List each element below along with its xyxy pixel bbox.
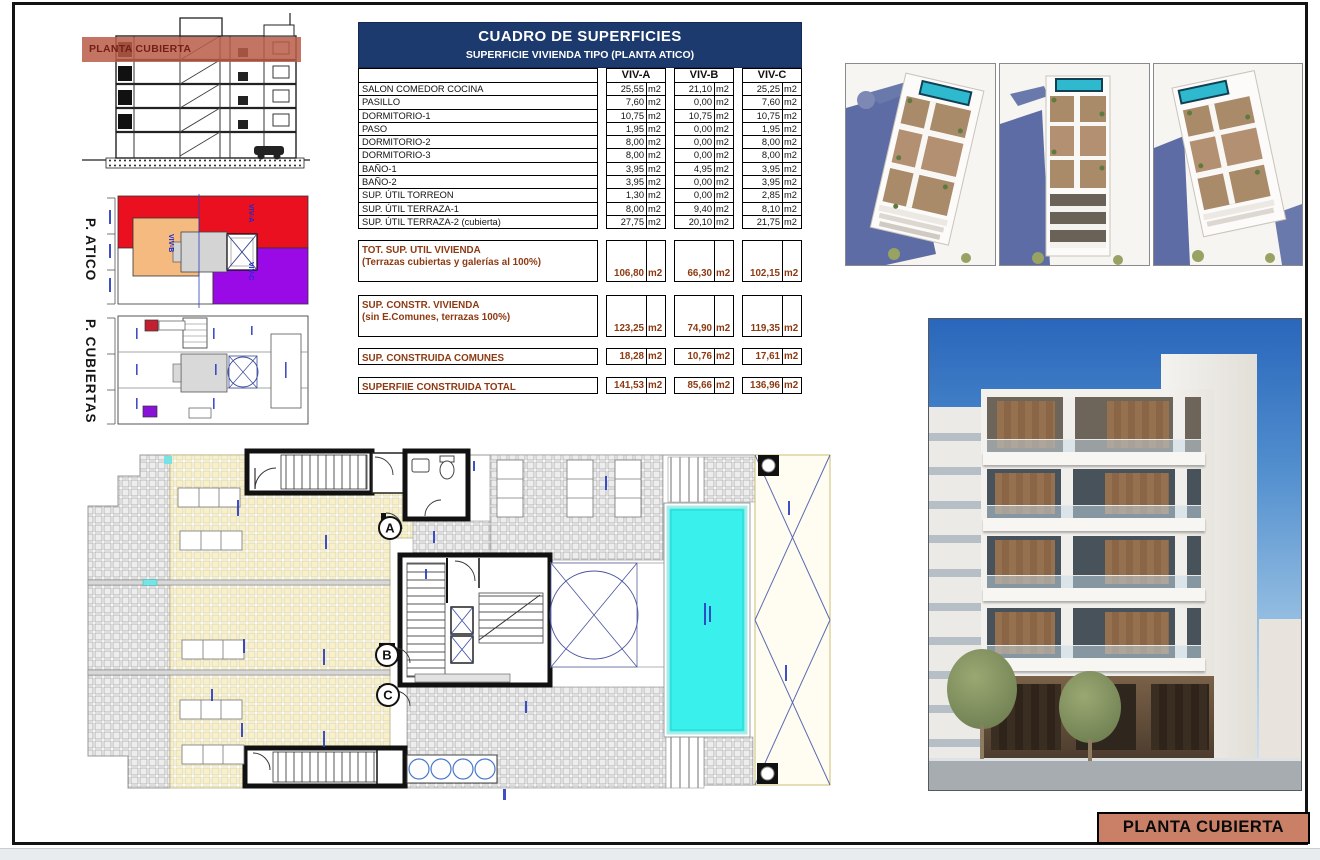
annotation-dash (109, 278, 111, 292)
vestibule (372, 453, 405, 493)
planta-cubierta-band-label: PLANTA CUBIERTA (82, 37, 301, 62)
deck-stripes-top (668, 457, 704, 502)
table-title: CUADRO DE SUPERFICIES (359, 28, 801, 45)
viv-b-header: VIV-B (675, 69, 733, 83)
roof-drain (758, 455, 779, 476)
sheet-title-plate: PLANTA CUBIERTA (1097, 812, 1310, 844)
balcony-slab (983, 452, 1205, 465)
viv-c-label: VIV-C (247, 262, 254, 280)
annotation-dash (109, 210, 111, 224)
facade-render (928, 318, 1302, 791)
core-zone (181, 354, 227, 392)
roof-casing (264, 25, 294, 36)
cubiertas-schematic (103, 312, 313, 430)
row-label: SUP. ÚTIL TORREON (359, 189, 597, 202)
table-label-column: SALON COMEDOR COCINA PASILLO DORMITORIO-… (358, 68, 598, 229)
viv-a-header: VIV-A (607, 69, 665, 83)
surfaces-table: CUADRO DE SUPERFICIES SUPERFICIE VIVIEND… (358, 22, 802, 394)
core-zone (181, 232, 227, 272)
aerial-render-3 (1153, 63, 1303, 266)
torreon-c (245, 748, 405, 786)
building-section-drawing (68, 8, 320, 186)
terrace-separator (88, 580, 390, 585)
row-label: DORMITORIO-2 (359, 136, 597, 149)
balcony-slab (983, 588, 1205, 601)
viv-c-header: VIV-C (743, 69, 801, 83)
summary-row-constr-vivienda: SUP. CONSTR. VIVIENDA(sin E.Comunes, ter… (358, 295, 802, 337)
deck-grid-bottom (704, 737, 753, 785)
torreon-top (183, 318, 207, 348)
terrace-separator (88, 670, 390, 675)
aerial-render-2 (999, 63, 1150, 266)
deck-stripes-bottom (666, 737, 704, 788)
row-label: SALON COMEDOR COCINA (359, 83, 597, 96)
planter-row (407, 755, 497, 783)
viv-b-label: VIV-B (167, 234, 174, 252)
balcony-band-2 (987, 536, 1201, 588)
bathroom-block (405, 451, 468, 519)
row-label: BAÑO-2 (359, 176, 597, 189)
roof-stub (159, 321, 185, 330)
planta-cubierta-band: PLANTA CUBIERTA (82, 37, 301, 62)
cubiertas-side-label: P. CUBIERTAS (83, 312, 98, 430)
pool (664, 503, 750, 737)
row-label: SUP. ÚTIL TERRAZA-1 (359, 203, 597, 216)
table-body: SALON COMEDOR COCINA PASILLO DORMITORIO-… (358, 68, 802, 229)
roof-stub (189, 408, 211, 418)
stair-core (400, 555, 550, 685)
row-label: BAÑO-1 (359, 163, 597, 176)
atico-schematic: VIV-A VIV-B VIV-C (103, 192, 313, 310)
core-notch (173, 364, 181, 382)
table-subtitle: SUPERFICIE VIVIENDA TIPO (PLANTA ATICO) (359, 49, 801, 61)
aerial-render-1 (845, 63, 996, 266)
aerial-renders-row (845, 63, 1302, 266)
marker-b: B (376, 644, 398, 666)
balcony-band-3 (987, 469, 1201, 518)
cyan-tick (164, 456, 172, 464)
cubiertas-bracket (107, 318, 115, 424)
cyan-tick (143, 580, 157, 586)
street-tree (1059, 671, 1121, 743)
side-strip (755, 455, 830, 785)
table-viv-c-column: VIV-C 25,25m2 7,60m2 10,75m2 1,95m2 8,00… (742, 68, 802, 229)
balcony-band-atico (987, 397, 1201, 452)
row-label: PASO (359, 123, 597, 136)
summary-row-comunes: SUP. CONSTRUIDA COMUNES 18,28m2 10,76m2 … (358, 348, 802, 365)
row-label: SUP. ÚTIL TERRAZA-2 (cubierta) (359, 216, 597, 228)
roof-drain (757, 763, 778, 784)
roof-plan: A B C (85, 443, 835, 801)
balcony-band-1 (987, 608, 1201, 658)
elevator-skylight (228, 356, 258, 388)
deck-grid-top (704, 457, 755, 502)
neighbor-building-left (929, 407, 983, 791)
marker-c: C (377, 684, 399, 706)
summary-row-total-util: TOT. SUP. UTIL VIVIENDA(Terrazas cubiert… (358, 240, 802, 282)
row-label: DORMITORIO-1 (359, 110, 597, 123)
table-viv-a-column: VIV-A 25,55m2 7,60m2 10,75m2 1,95m2 8,00… (606, 68, 666, 229)
atico-side-label: P. ATICO (83, 194, 98, 306)
row-label: PASILLO (359, 96, 597, 109)
viv-a-label: VIV-A (247, 204, 254, 222)
roof-tower (180, 18, 222, 36)
row-label: DORMITORIO-3 (359, 149, 597, 162)
label-column-header (359, 69, 597, 83)
street-tree (947, 649, 1017, 729)
viewer-edge-strip (0, 848, 1320, 860)
summary-row-total: SUPERFIIE CONSTRUIDA TOTAL 141,53m2 85,6… (358, 377, 802, 394)
marker-a: A (379, 517, 401, 539)
svg-text:A: A (385, 521, 395, 536)
torreon-a-block (145, 320, 158, 331)
torreon-c-block (143, 406, 157, 417)
balcony-slab (983, 658, 1205, 671)
svg-text:B: B (382, 648, 391, 663)
street (929, 758, 1302, 791)
table-viv-b-column: VIV-B 21,10m2 0,00m2 10,75m2 0,00m2 0,00… (674, 68, 734, 229)
torreon-a (247, 451, 372, 493)
balcony-slab (983, 518, 1205, 531)
ground-hatch (106, 158, 304, 168)
annotation-dash (109, 244, 111, 258)
svg-text:C: C (383, 688, 393, 703)
table-header: CUADRO DE SUPERFICIES SUPERFICIE VIVIEND… (358, 22, 802, 68)
